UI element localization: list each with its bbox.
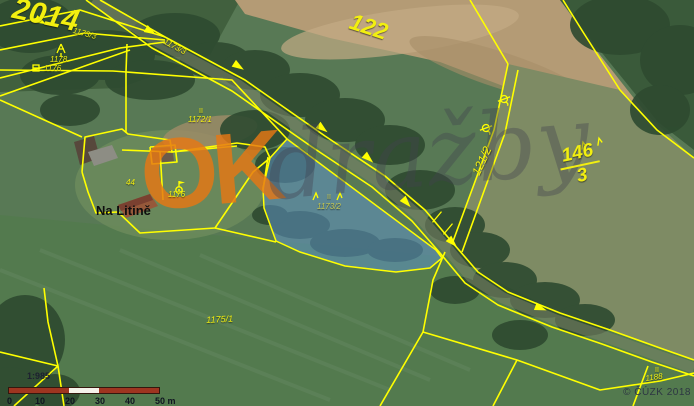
- parcel-label-1173-2: 1173/2: [317, 203, 341, 211]
- scale-tick-label: 30: [95, 396, 105, 406]
- scale-bar-segments: [8, 387, 160, 394]
- land-class-label-1172: II: [199, 108, 203, 115]
- parcel-label-1176-a: 1176: [44, 65, 61, 73]
- scale-segment: [39, 388, 69, 393]
- parcel-label-1176-b: 1176: [168, 191, 185, 199]
- scale-segment: [99, 388, 129, 393]
- scale-segment: [129, 388, 159, 393]
- scale-tick-label: 20: [65, 396, 75, 406]
- map-viewport[interactable]: OKdražby 1:985 01020304050 m © ČÚZK 2018…: [0, 0, 694, 406]
- parcel-label-1172-1: 1172/1: [188, 116, 212, 124]
- scale-segment: [9, 388, 39, 393]
- scale-segment: [69, 388, 99, 393]
- scale-bar: 1:985 01020304050 m: [8, 370, 198, 406]
- parcel-label-1178: 1178: [50, 56, 67, 64]
- parcel-label-1175-1: 1175/1: [206, 315, 233, 325]
- place-label-na-litine: Na Litině: [96, 204, 151, 217]
- scale-tick-label: 10: [35, 396, 45, 406]
- parcel-label-146-3: 1463: [556, 140, 604, 190]
- scale-tick-label: 50 m: [155, 396, 176, 406]
- land-class-label-1173-2: II: [327, 194, 331, 201]
- building-label-44: 44: [126, 179, 135, 187]
- scale-ratio: 1:985: [27, 371, 50, 381]
- copyright-label: © ČÚZK 2018: [623, 387, 691, 398]
- land-class-label-1188: II: [655, 367, 659, 374]
- scale-tick-label: 40: [125, 396, 135, 406]
- scale-tick-label: 0: [7, 396, 12, 406]
